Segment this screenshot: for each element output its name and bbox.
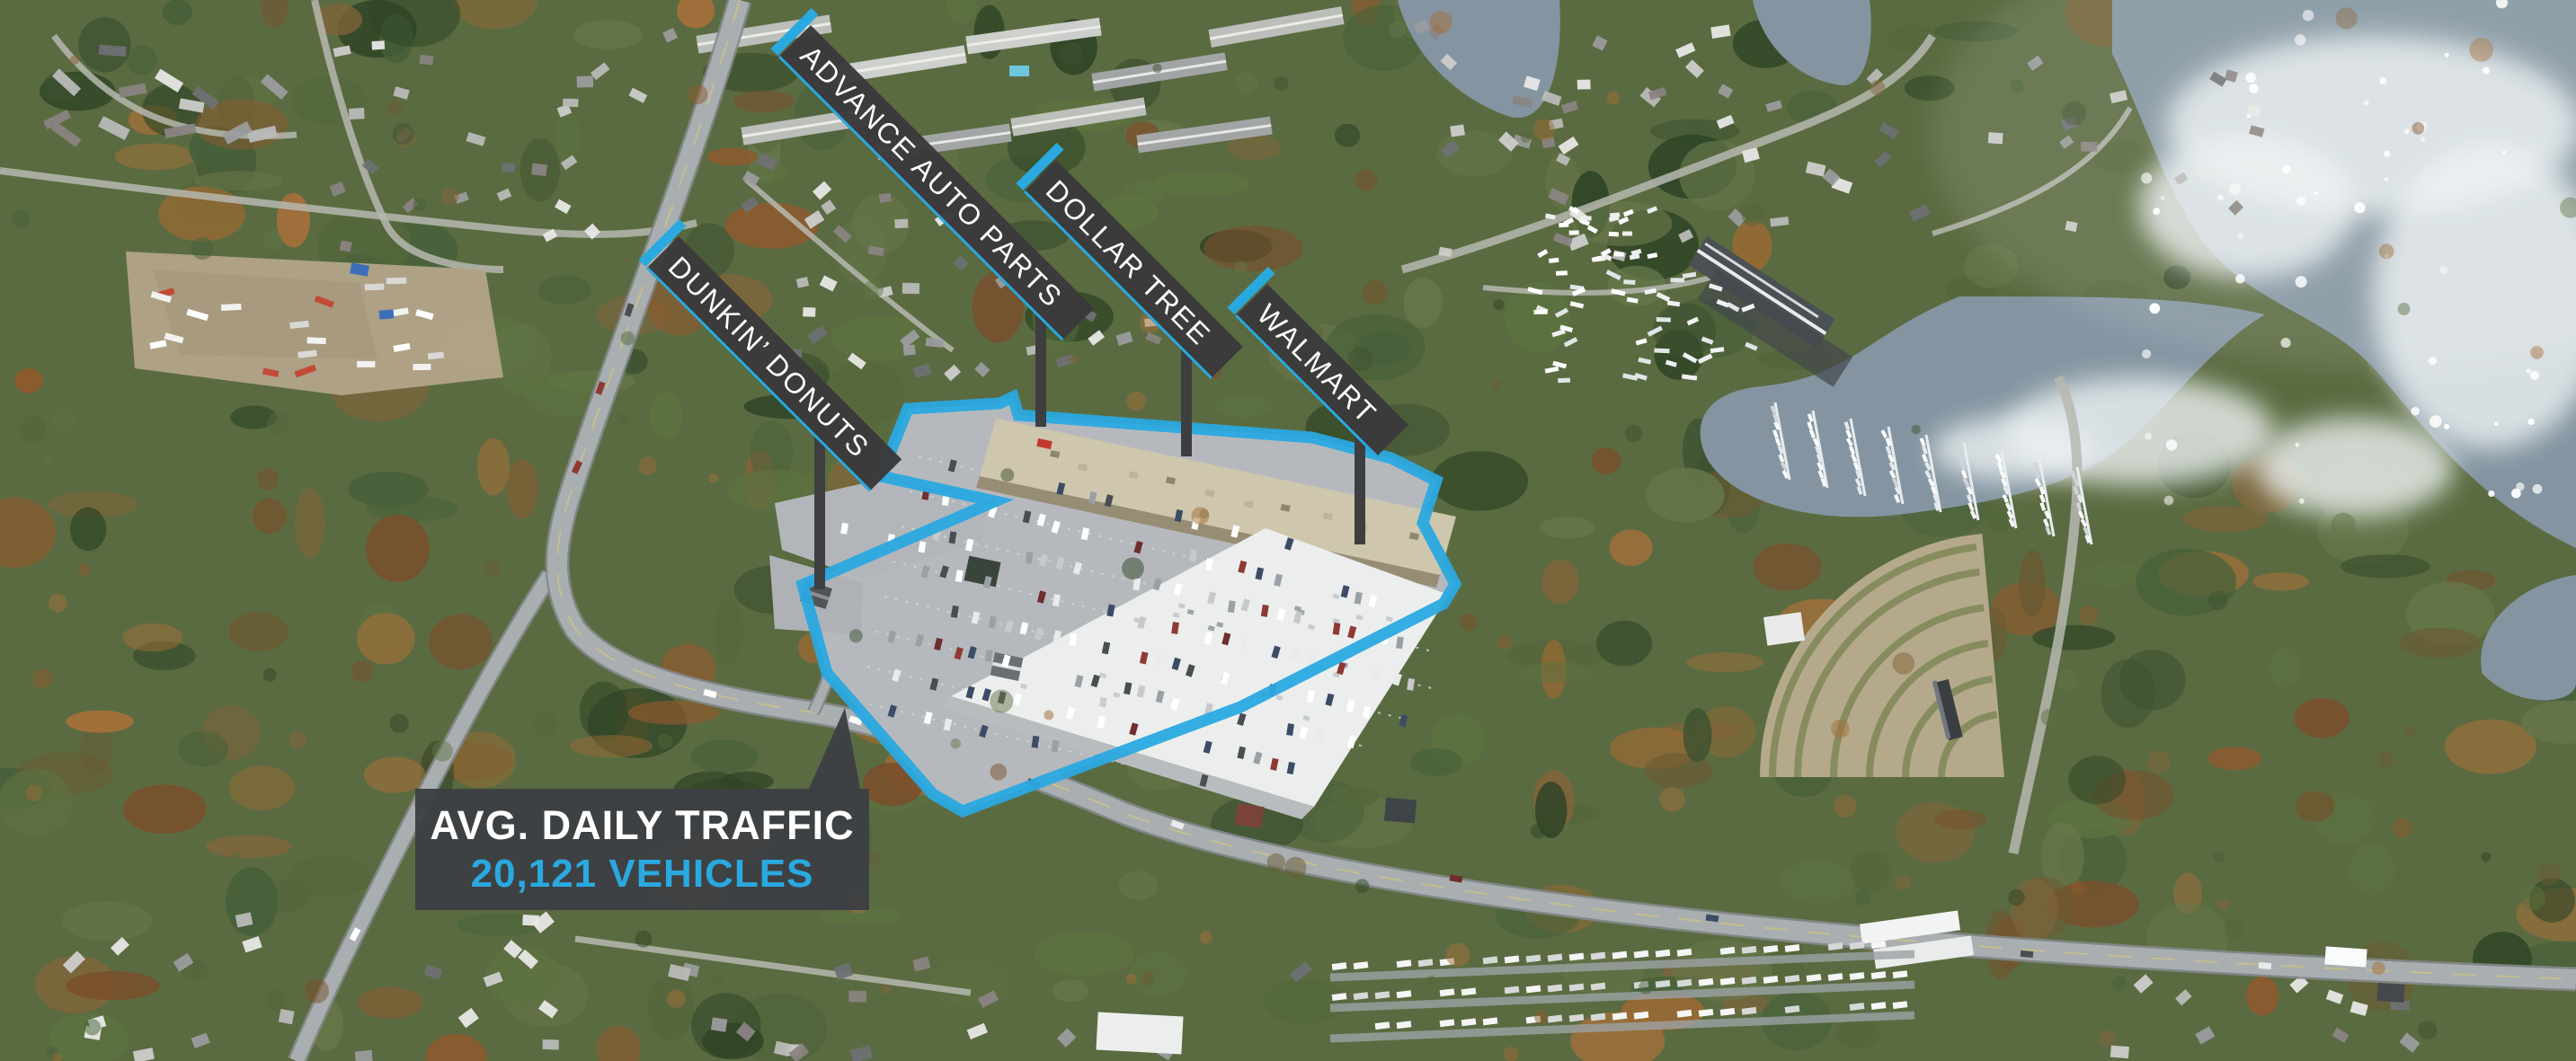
label-pole-dunkin-donuts — [814, 422, 825, 589]
traffic-callout-value: 20,121 VEHICLES — [471, 852, 814, 897]
callout-pointer — [807, 708, 861, 792]
traffic-callout: AVG. DAILY TRAFFIC 20,121 VEHICLES — [415, 789, 869, 910]
traffic-callout-heading: AVG. DAILY TRAFFIC — [430, 802, 854, 849]
aerial-site-map: DUNKIN’ DONUTS ADVANCE AUTO PARTS DOLLAR… — [0, 0, 2576, 1061]
annotation-overlay — [0, 0, 2576, 1061]
